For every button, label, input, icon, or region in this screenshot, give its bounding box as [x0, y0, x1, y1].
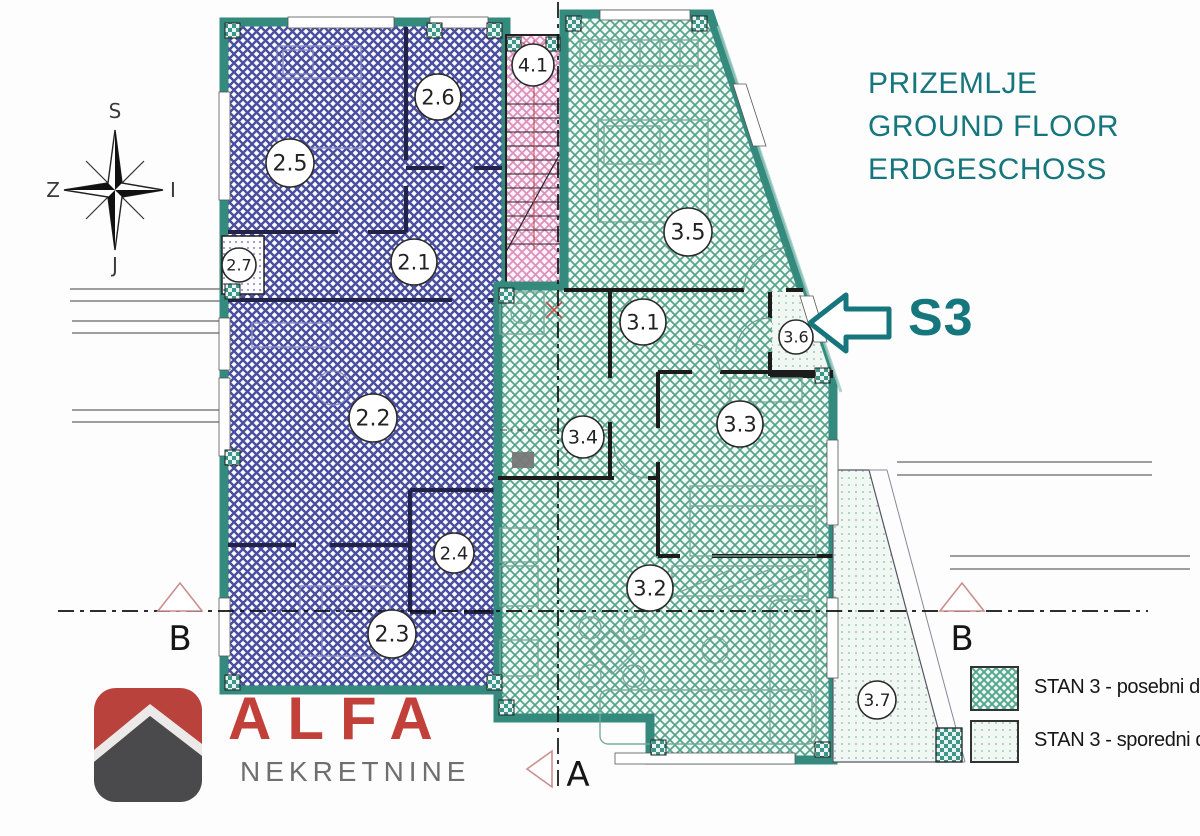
section-marker-a-label: A: [566, 755, 589, 795]
room-label-2.4: 2.4: [434, 533, 474, 573]
svg-text:2.3: 2.3: [375, 623, 410, 648]
room-label-3.4: 3.4: [562, 416, 604, 458]
compass-south-label: J: [110, 253, 118, 277]
floor-title-line-en: GROUND FLOOR: [868, 105, 1119, 148]
section-marker-b-right-label: B: [950, 619, 973, 659]
room-label-2.5: 2.5: [266, 139, 314, 187]
room-label-3.6: 3.6: [779, 320, 813, 354]
apartment-2-blue: [222, 22, 506, 690]
floorplan-page: B B A S I J Z 2.52.62.72.12.22.42.34.13.…: [0, 0, 1200, 836]
compass-north-label: S: [109, 99, 122, 123]
svg-text:3.1: 3.1: [626, 310, 659, 334]
room-label-2.2: 2.2: [349, 394, 397, 442]
legend-label-sporedni: STAN 3 - sporedni dio: [1034, 729, 1200, 752]
floor-title-line-hr: PRIZEMLJE: [868, 62, 1119, 105]
svg-text:3.4: 3.4: [568, 427, 598, 449]
compass-west-label: Z: [46, 178, 60, 202]
section-marker-b-right-triangle: [940, 583, 984, 611]
svg-text:4.1: 4.1: [518, 55, 548, 77]
section-marker-b-left-triangle: [158, 583, 202, 611]
room-label-3.5: 3.5: [664, 208, 712, 256]
svg-text:3.2: 3.2: [633, 576, 666, 600]
svg-text:2.5: 2.5: [273, 152, 308, 177]
room-label-2.7: 2.7: [222, 248, 256, 282]
legend-swatch-sporedni: [971, 721, 1018, 762]
compass-rose-icon: S I J Z: [46, 99, 176, 277]
alfa-logo-icon: [92, 686, 204, 809]
floor-title-line-de: ERDGESCHOSS: [868, 148, 1119, 191]
floor-title: PRIZEMLJE GROUND FLOOR ERDGESCHOSS: [868, 62, 1119, 191]
svg-text:2.1: 2.1: [397, 250, 430, 274]
svg-text:3.7: 3.7: [863, 691, 890, 711]
brand-subtitle: NEKRETNINE: [240, 756, 470, 788]
svg-text:2.6: 2.6: [421, 85, 454, 109]
legend-swatches: [971, 667, 1018, 762]
svg-text:2.4: 2.4: [440, 543, 469, 564]
room-label-2.6: 2.6: [415, 74, 461, 120]
svg-text:2.2: 2.2: [356, 407, 391, 432]
section-marker-b-left-label: B: [168, 619, 191, 659]
brand-name: ALFA: [228, 684, 449, 753]
room-label-2.1: 2.1: [391, 239, 437, 285]
apartment-s3-label: S3: [908, 288, 974, 348]
room-label-3.2: 3.2: [627, 565, 673, 611]
legend-swatch-posebni: [971, 667, 1018, 710]
room-label-3.3: 3.3: [717, 401, 763, 447]
svg-text:3.5: 3.5: [671, 221, 706, 246]
compass-east-label: I: [170, 178, 176, 202]
terrace-3-7: [833, 470, 965, 762]
room-label-3.1: 3.1: [620, 299, 666, 345]
section-marker-a-triangle: [527, 751, 552, 787]
room-label-3.7: 3.7: [858, 681, 896, 719]
svg-text:3.6: 3.6: [783, 328, 808, 347]
room-label-4.1: 4.1: [512, 44, 554, 86]
svg-text:2.7: 2.7: [226, 256, 251, 275]
legend-label-posebni: STAN 3 - posebni dio: [1034, 676, 1200, 699]
svg-text:3.3: 3.3: [723, 412, 756, 436]
room-label-2.3: 2.3: [368, 610, 416, 658]
